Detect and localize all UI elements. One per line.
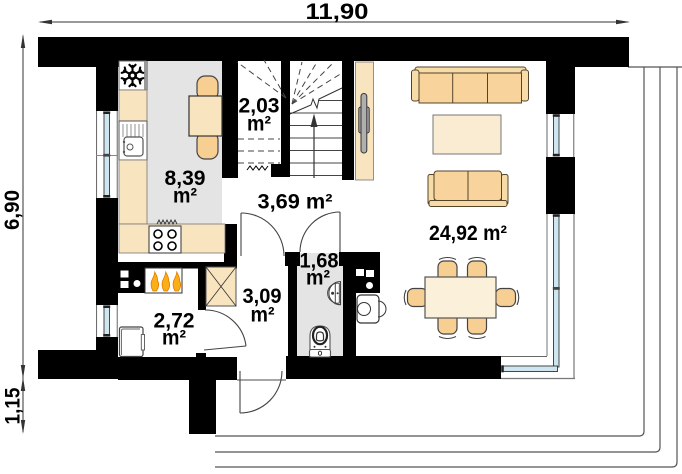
svg-text:m²: m² xyxy=(306,267,330,290)
svg-text:11,90: 11,90 xyxy=(306,0,369,24)
svg-text:3,69 m²: 3,69 m² xyxy=(258,191,333,214)
svg-text:m²: m² xyxy=(251,304,275,327)
svg-text:m²: m² xyxy=(173,185,197,208)
svg-text:1,15: 1,15 xyxy=(2,387,25,424)
svg-text:m²: m² xyxy=(247,113,271,136)
svg-text:6,90: 6,90 xyxy=(1,190,24,230)
svg-text:m²: m² xyxy=(162,327,186,350)
svg-text:24,92 m²: 24,92 m² xyxy=(429,222,507,245)
